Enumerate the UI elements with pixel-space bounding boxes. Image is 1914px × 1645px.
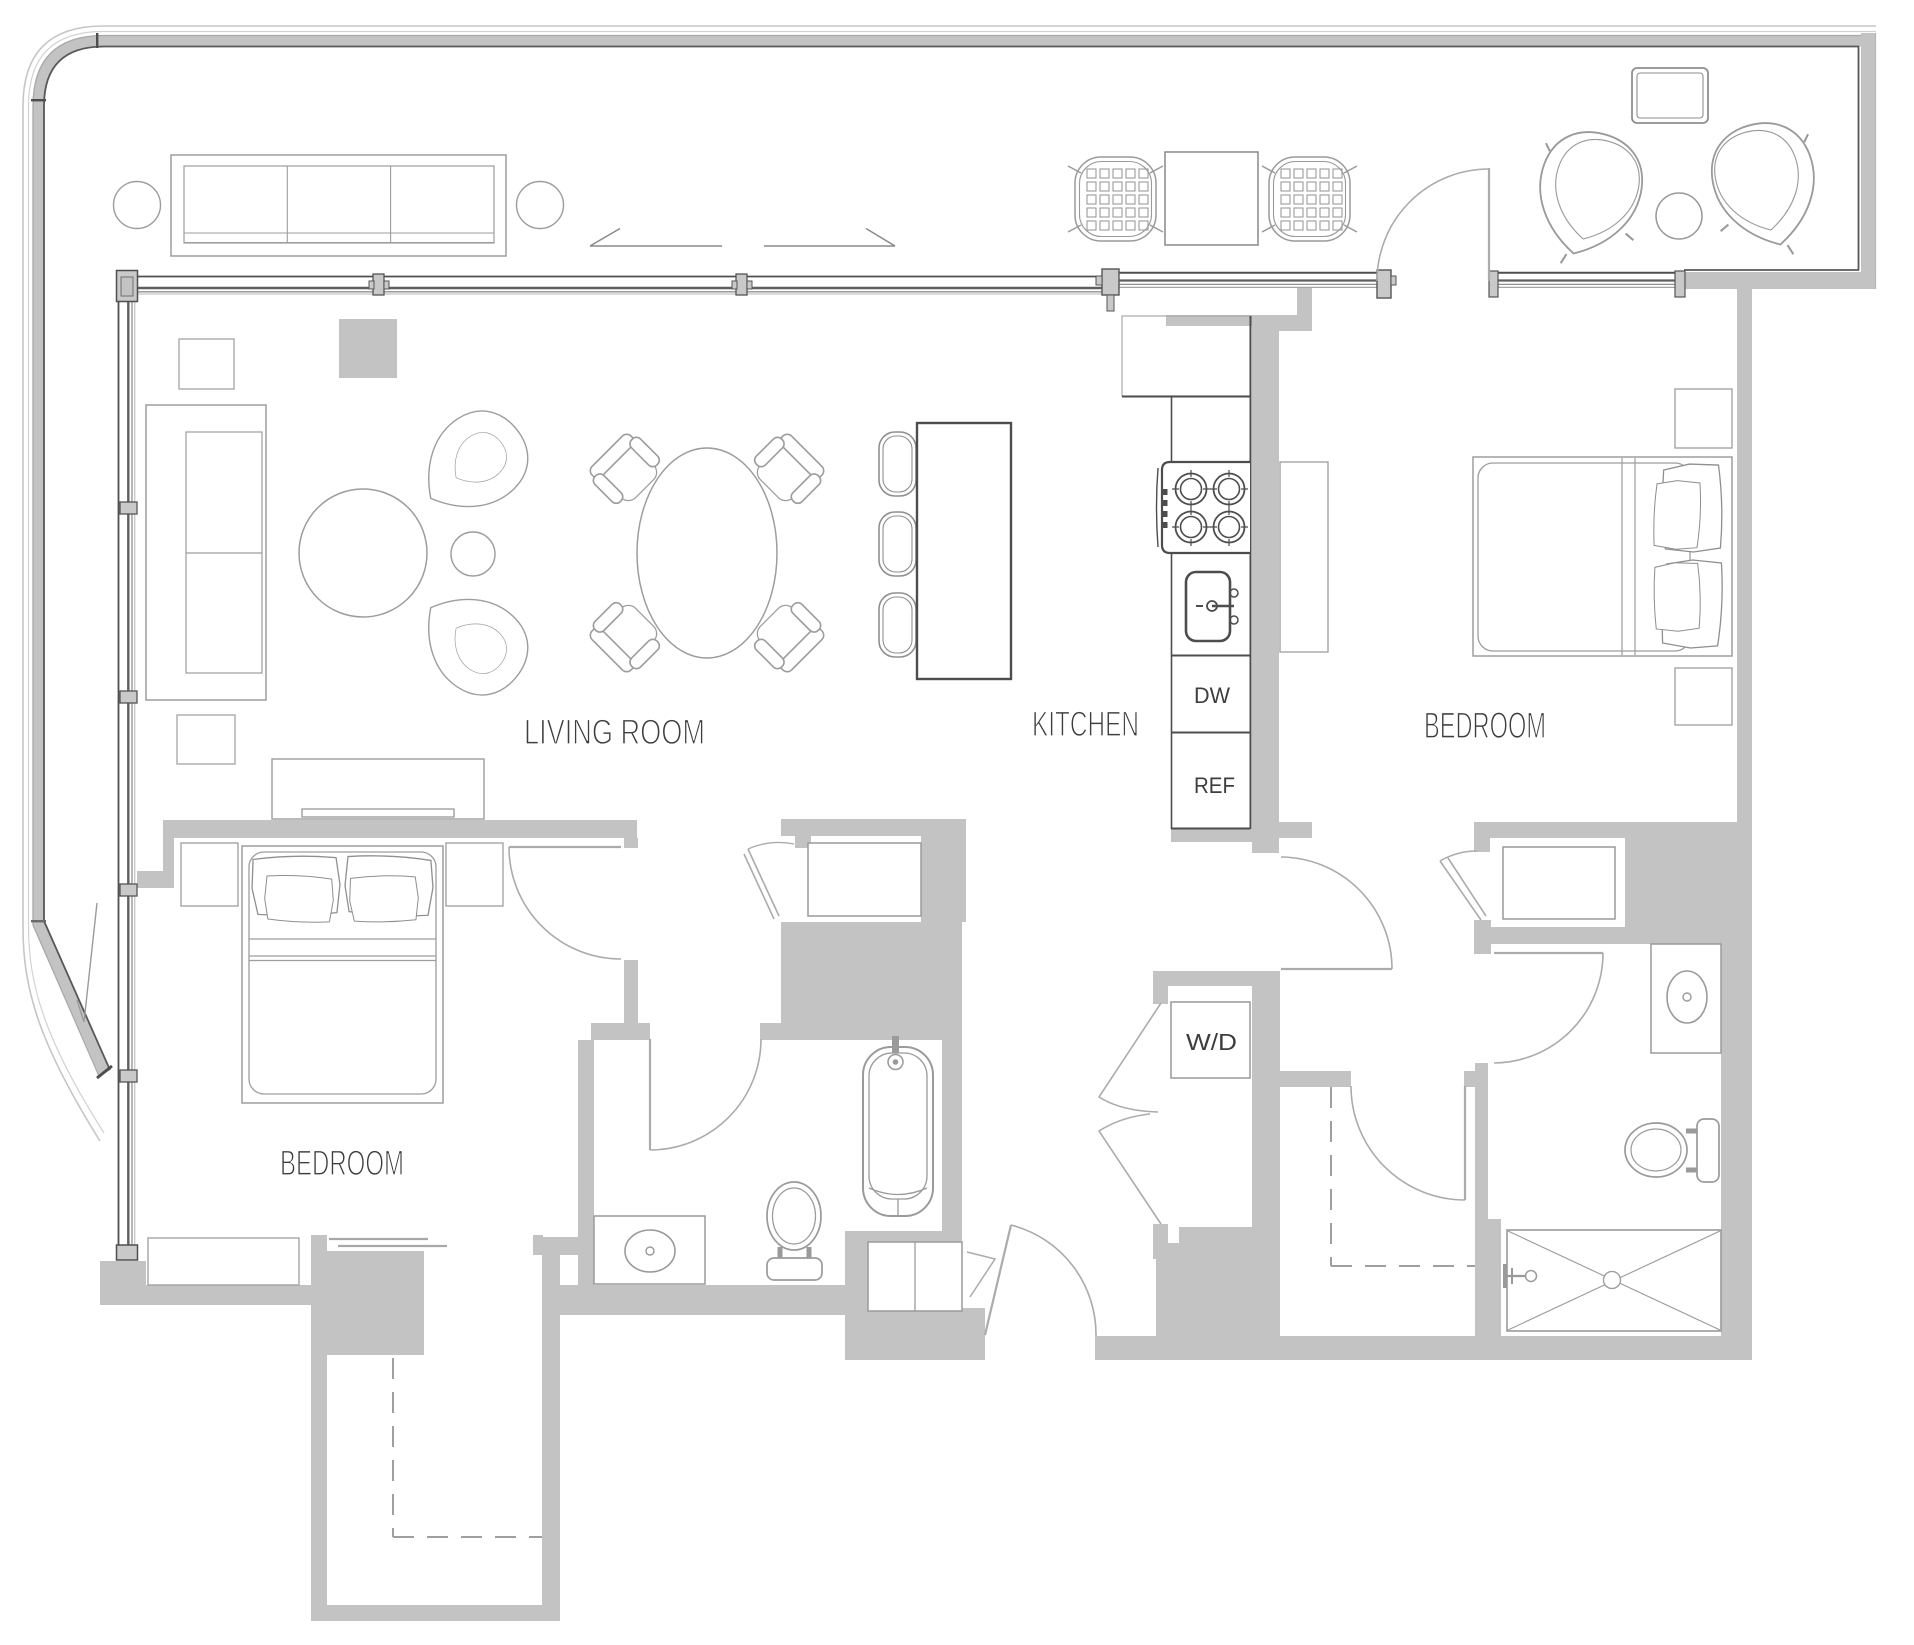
svg-text:BEDROOM: BEDROOM (1424, 705, 1546, 746)
svg-text:REF: REF (1194, 773, 1235, 798)
svg-text:LIVING ROOM: LIVING ROOM (524, 713, 705, 752)
svg-text:W/D: W/D (1186, 1029, 1237, 1055)
svg-text:KITCHEN: KITCHEN (1032, 705, 1139, 744)
svg-text:DW: DW (1194, 683, 1230, 708)
svg-text:BEDROOM: BEDROOM (280, 1144, 404, 1183)
